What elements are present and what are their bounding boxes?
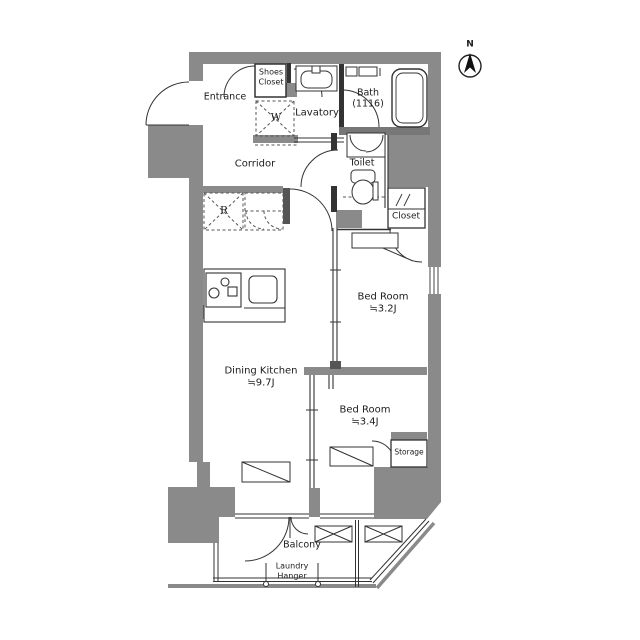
label-shoes-closet: ShoesCloset [259,68,284,87]
label-laundry-hanger: LaundryHanger [276,562,309,581]
label-bedroom2: Bed Room≒3.4J [339,405,390,428]
compass-icon [459,53,481,77]
toilet-door-arc [301,150,338,187]
label-storage: Storage [394,446,423,458]
label-lavatory: Lavatory [295,107,339,119]
bed-icon-2 [330,447,373,466]
kitchen-counter-icon [204,269,285,322]
label-entrance: Entrance [204,91,247,103]
label-toilet: Toilet [350,157,375,169]
cabinet-area [245,193,283,230]
label-closet: Closet [392,211,420,223]
bedroom1-furniture-icon [352,233,398,248]
floor-plan: N Entrance ShoesCloset W Lavatory Bath(1… [0,0,640,640]
sink-icon [296,66,337,91]
bed-icon-1 [242,462,290,482]
label-washer: W [271,112,282,124]
label-corridor: Corridor [235,158,276,170]
balcony-door-small-arc [290,517,308,538]
dk-door-arc [290,189,332,231]
bathtub-icon [392,69,427,127]
kitchen-sink-icon [249,276,277,303]
exterior-walls [148,52,441,588]
label-fridge: R [220,205,228,217]
label-balcony: Balcony [283,539,321,551]
compass-north-label: N [466,39,474,51]
label-bath: Bath(1116) [352,89,384,110]
right-wall-window [428,267,441,294]
label-bedroom1: Bed Room≒3.2J [357,292,408,315]
shower-fixture-icon [346,67,380,76]
entrance-door-arc [146,82,189,125]
label-dining-kitchen: Dining Kitchen≒9.7J [224,366,297,389]
